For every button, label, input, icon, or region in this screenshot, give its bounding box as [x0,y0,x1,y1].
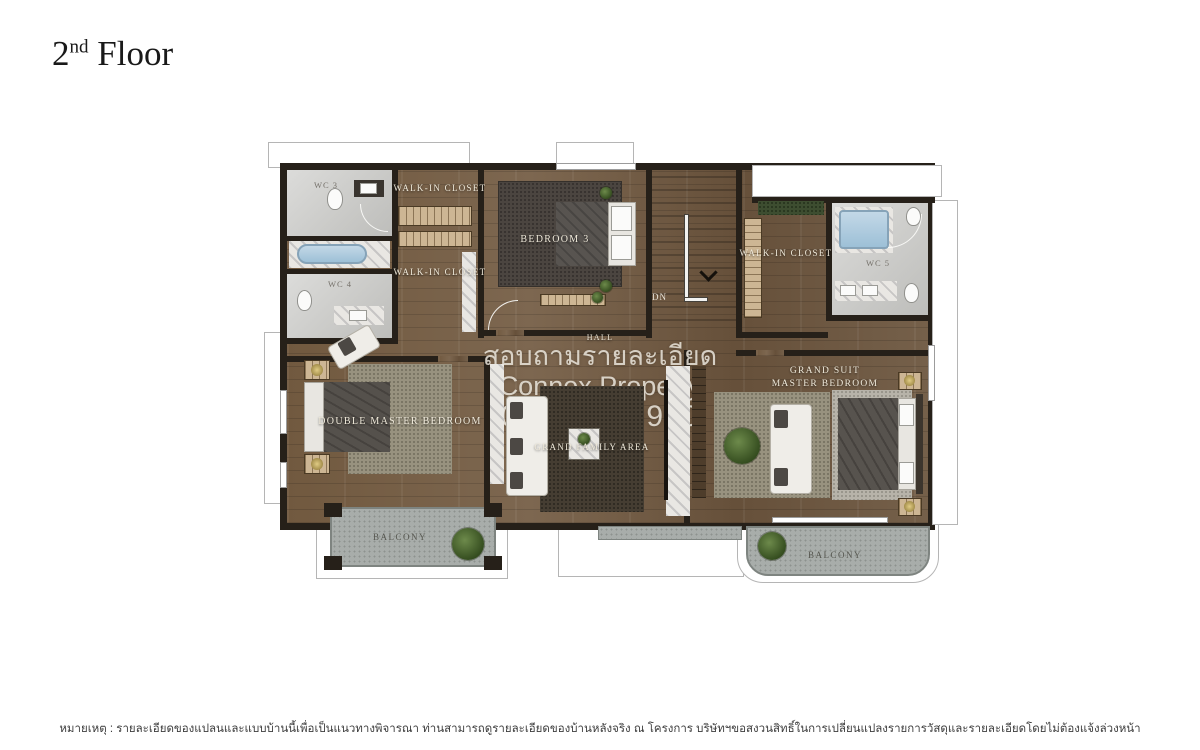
wc5-shower [839,210,889,249]
bedroom3-pillow-2 [611,235,632,260]
window-left-1 [280,390,287,434]
wc5-sink-1 [840,285,856,296]
wc5-sink-2 [862,285,878,296]
suite-pillow-2 [899,462,914,484]
wc4-toilet [297,290,312,311]
wc5-toilet-bottom [904,283,919,303]
balcony-left-pier-3 [324,556,342,570]
suite-sofa-cushion-2 [774,468,788,486]
bedroom3-bench-plant [592,292,603,303]
bedroom3-label: BEDROOM 3 [505,234,605,245]
wc4-sink [349,310,367,321]
balcony-left-pier-1 [324,503,342,517]
wc3-label: WC 3 [296,180,356,190]
roof-outline-right-wing [752,165,942,197]
stair-railing-foot [684,297,708,302]
bedroom3-plant-bottom [600,280,612,292]
family-marble-wall-left [490,364,504,484]
suite-pillow-1 [899,404,914,426]
wall-rightcloset-bottom [736,332,828,338]
family-media-wall [666,366,690,516]
wc5-label: WC 5 [848,258,908,268]
doublemaster-label: DOUBLE MASTER BEDROOM [305,416,495,427]
suite-headboard [916,394,923,494]
wc3-sink [360,183,377,194]
balcony-right-label: BALCONY [770,550,900,560]
window-left-2 [280,462,287,488]
bedroom3-plant-top [600,187,612,199]
suite-lamp-bottom [904,501,915,512]
wc4-label: WC 4 [310,279,370,289]
rightwing-hedge [758,201,824,215]
closet3-wardrobe [744,218,762,318]
balcony-left-pier-2 [484,503,502,517]
suite-wardrobe-strip [692,366,706,498]
bedroom3-pillow-1 [611,206,632,231]
closet2-wardrobe [398,231,472,247]
balcony-left-pier-4 [484,556,502,570]
footer-note: หมายเหตุ : รายละเอียดของแปลนและแบบบ้านนี… [0,720,1200,738]
wc3-toilet [327,188,343,210]
wall-wc-closet [392,170,398,338]
wall-wc5-bottom [826,315,928,321]
closet2-label: WALK-IN CLOSET [392,267,488,277]
balcony-left-label: BALCONY [340,532,460,542]
floor-plan-page: 2nd Floor WC 3 WC 4 [0,0,1200,750]
stair-railing [684,214,689,302]
family-sofa-cushion-1 [510,402,523,419]
closet1-label: WALK-IN CLOSET [392,183,488,193]
stair-dn-label: DN [652,292,667,302]
closet-marble-strip [462,252,476,332]
bottom-center-deck [598,526,742,540]
door-gap-bedroom3 [496,330,524,336]
floor-ordinal: nd [70,36,89,57]
suite-label-line2: MASTER BEDROOM [740,379,910,389]
suite-label-line1: GRAND SUIT [740,366,910,376]
staircase [652,176,736,330]
suite-bed-blanket [838,398,898,490]
page-title: 2nd Floor [52,34,173,74]
wall-closet-bedroom3 [478,170,484,338]
roof-outline-right-band [932,200,958,525]
sliding-door-balcony-right [772,517,888,523]
family-tv [664,380,668,500]
floor-word: Floor [97,34,173,73]
window-bedroom3-top [556,163,636,170]
doublemaster-lamp-bottom [311,458,323,470]
bathtub [297,244,367,264]
suite-sofa-cushion-1 [774,410,788,428]
suite-plant-table [724,428,760,464]
window-right [928,345,935,401]
closet3-label: WALK-IN CLOSET [738,248,834,258]
doublemaster-lamp-top [311,364,323,376]
family-label: GRAND FAMILY AREA [502,442,682,452]
floor-number: 2 [52,34,70,73]
closet1-wardrobe [398,206,472,226]
family-sofa-cushion-3 [510,472,523,489]
watermark-line1: สอบถามรายละเอียด [430,341,770,371]
